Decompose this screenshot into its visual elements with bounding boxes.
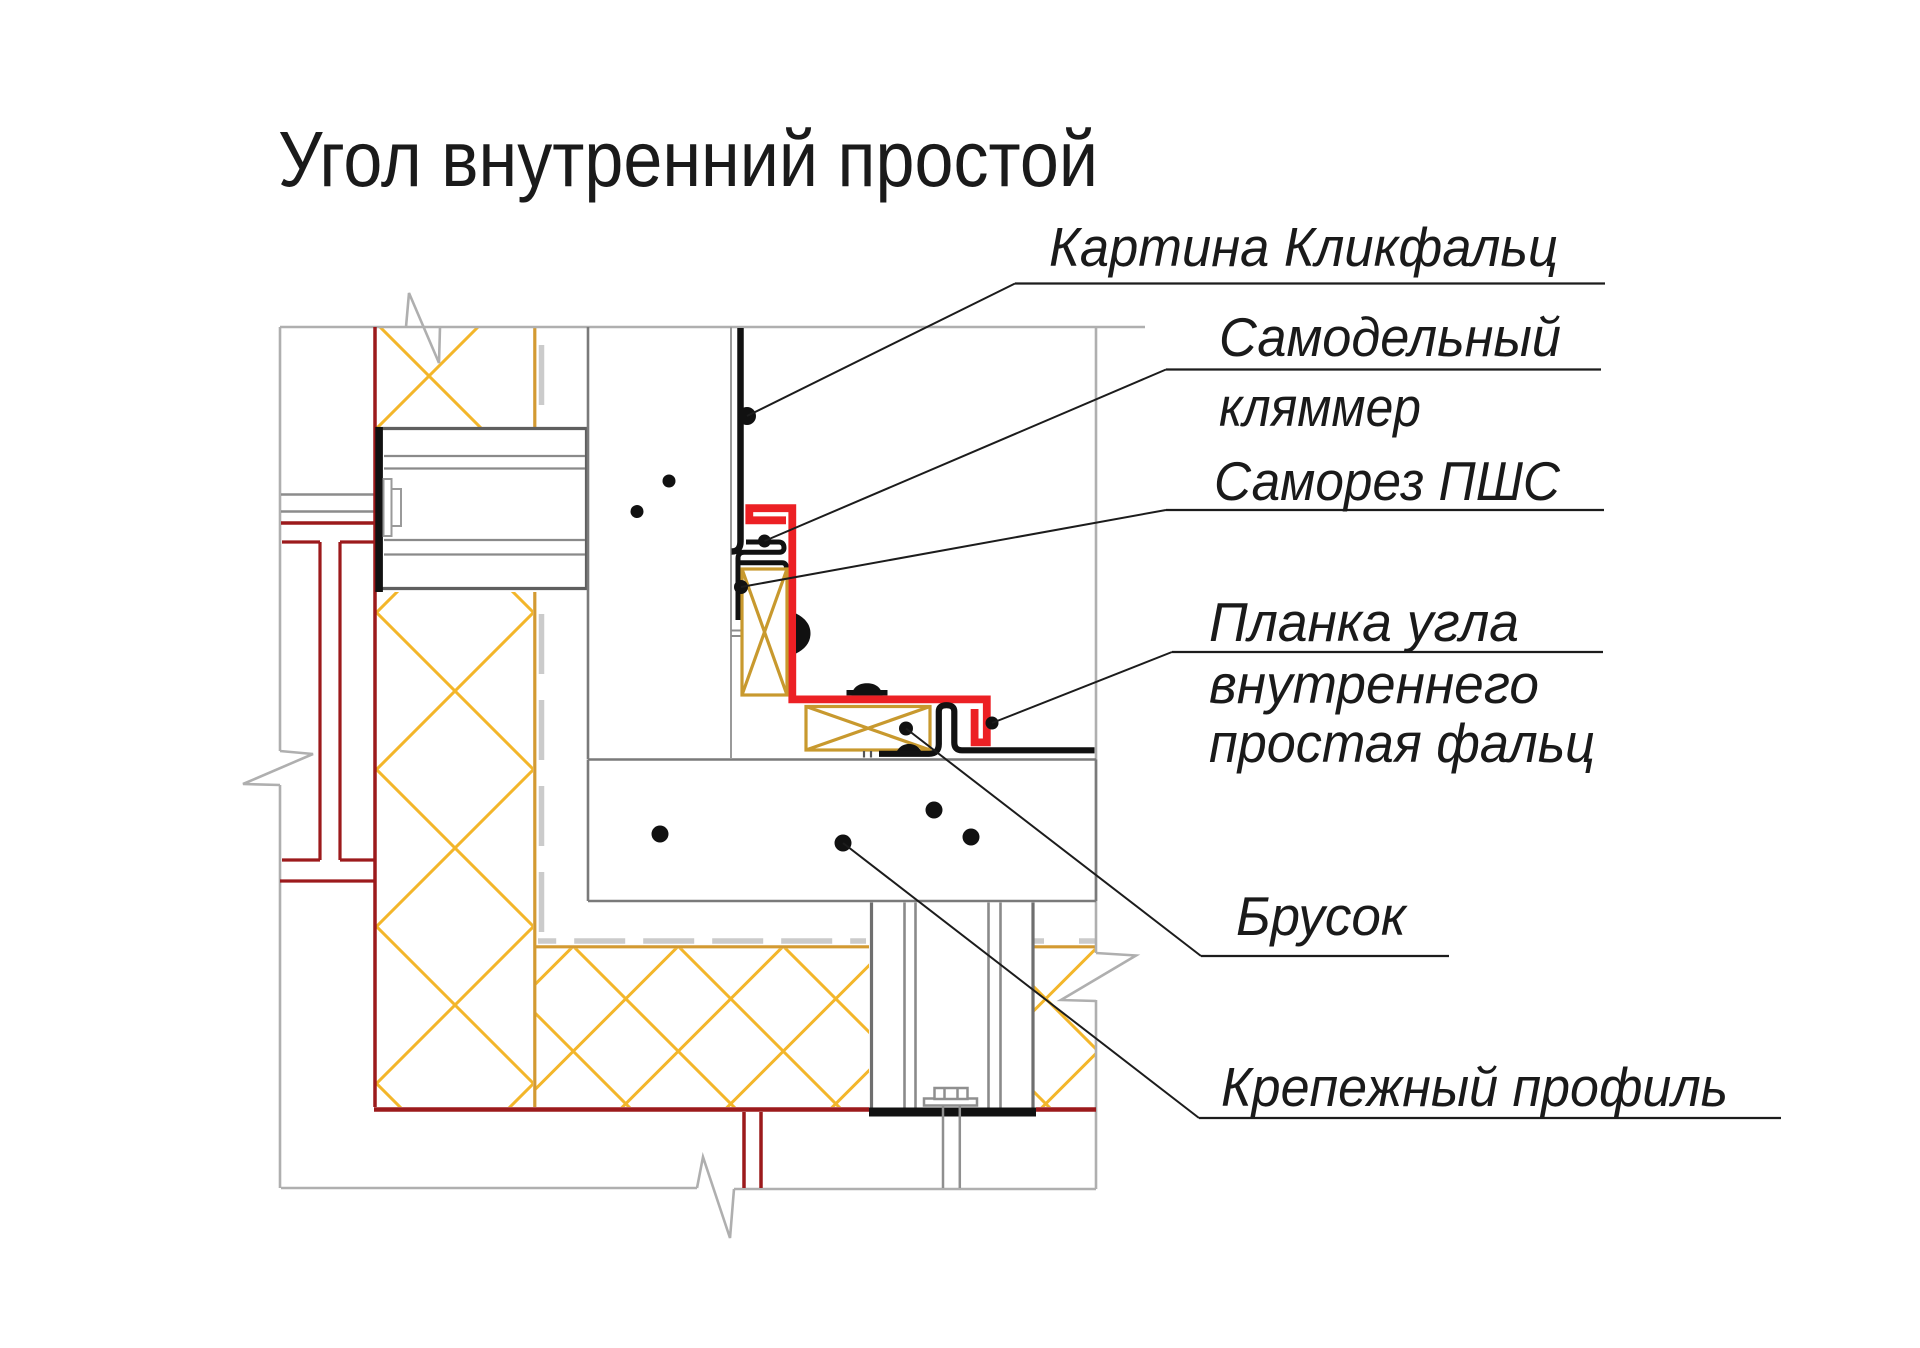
svg-text:простая фальц: простая фальц [1209, 712, 1595, 774]
svg-text:кляммер: кляммер [1219, 376, 1421, 438]
svg-text:Угол внутренний простой: Угол внутренний простой [278, 114, 1098, 203]
svg-text:Крепежный профиль: Крепежный профиль [1221, 1056, 1728, 1118]
svg-text:Самодельный: Самодельный [1219, 306, 1561, 368]
svg-text:Картина Кликфальц: Картина Кликфальц [1049, 216, 1558, 278]
svg-text:Брусок: Брусок [1236, 885, 1408, 947]
svg-text:Планка угла: Планка угла [1209, 591, 1519, 653]
svg-text:Саморез ПШС: Саморез ПШС [1214, 450, 1561, 512]
svg-text:внутреннего: внутреннего [1209, 653, 1539, 715]
